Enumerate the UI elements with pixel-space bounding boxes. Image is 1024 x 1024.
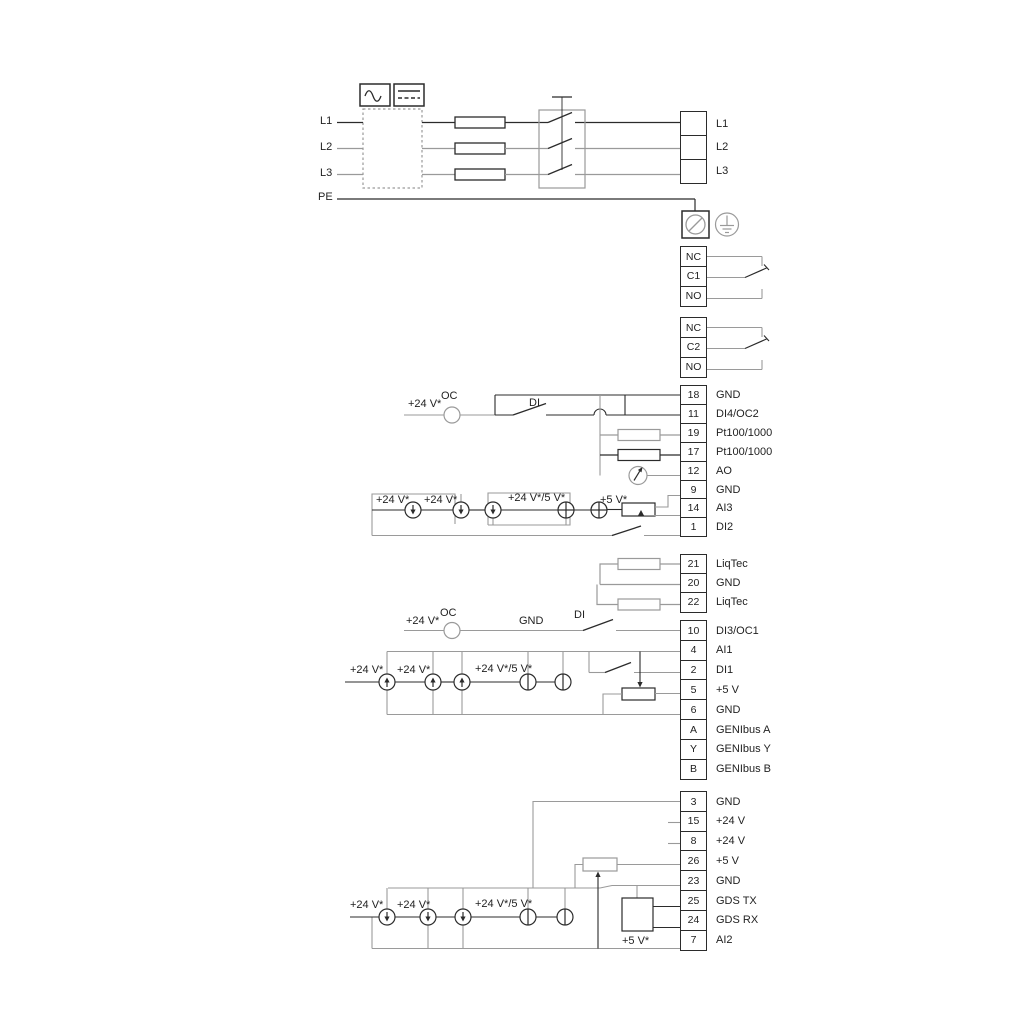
terminal-12-label: AO [716,461,732,481]
ac-symbol-icon [360,84,390,106]
terminal-17: 17 [680,442,707,462]
terminal-row: 9 GND [680,480,772,500]
fuse-icon [455,169,505,180]
terminal-22-label: LiqTec [716,592,748,612]
terminal-10: 10 [680,620,707,641]
terminal-9: 9 [680,480,707,500]
di-switch-icon [605,663,631,673]
phase-l2-wire [337,143,680,154]
terminal-row: 7 AI2 [680,930,758,951]
liqtec-resistor-icon [618,559,660,570]
terminal-L2 [680,135,707,160]
supply-label: +24 V* [406,616,439,627]
supply-label: +5 V* [600,495,627,506]
screw-terminal-icon [682,211,709,238]
terminal-1-label: DI2 [716,517,733,537]
phase-l3-wire [337,169,680,180]
terminal-row: NC [680,317,707,338]
terminal-row: 11 DI4/OC2 [680,404,772,424]
gds-sensor-box [622,898,680,931]
wiring-diagram-page: L1 L2 L3 PE +24 V* OC DI +24 V* +24 V* +… [0,0,1024,1024]
terminal-L1-label: L1 [716,111,728,136]
terminal-row: 3 GND [680,791,758,812]
di-label: DI [574,610,585,621]
terminal-4: 4 [680,640,707,661]
liqtec-circuit [597,559,680,611]
terminal-row: 17 Pt100/1000 [680,442,772,462]
terminal-15-label: +24 V [716,811,745,832]
oc-label: OC [441,391,458,402]
terminal-row: 4 AI1 [680,640,771,661]
terminal-row: 5 +5 V [680,679,771,700]
mains-terminal-strip: L1 L2 L3 [680,111,728,184]
terminal-row: Y GENIbus Y [680,739,771,760]
terminal-NO2: NO [680,357,707,378]
terminal-row: NO [680,357,707,378]
oc-circle-icon [444,407,460,423]
liqtec-resistor-icon [618,599,660,610]
terminal-row: L2 [680,135,728,160]
terminal-row: 14 AI3 [680,498,772,518]
relay2-strip: NC C2 NO [680,317,707,378]
terminal-3: 3 [680,791,707,812]
terminal-21: 21 [680,554,707,574]
supply-label: +24 V* [408,399,441,410]
terminal-row: 21 LiqTec [680,554,748,574]
di4-oc2-circuit [404,395,680,485]
terminal-4-label: AI1 [716,640,733,661]
terminal-A-label: GENIbus A [716,719,770,740]
pt100-resistor-icon [600,450,680,461]
power-input-section [337,84,739,238]
terminal-19: 19 [680,423,707,443]
terminal-row: 22 LiqTec [680,592,748,612]
terminal-strip-1: 18 GND 11 DI4/OC2 19 Pt100/1000 17 Pt100… [680,385,772,537]
terminal-10-label: DI3/OC1 [716,620,759,641]
transmitter-icon [379,909,471,925]
terminal-20-label: GND [716,573,740,593]
terminal-8: 8 [680,831,707,852]
mains-label-l2: L2 [320,142,332,153]
terminal-14-label: AI3 [716,498,733,518]
terminal-row: 10 DI3/OC1 [680,620,771,641]
terminal-25-label: GDS TX [716,890,757,911]
terminal-row: C1 [680,266,707,287]
terminal-B: B [680,759,707,780]
di-switch-icon [583,620,613,631]
di-switch-icon [612,526,641,536]
supply-label: +24 V*/5 V* [508,493,565,504]
terminal-5: 5 [680,679,707,700]
ao-meter-icon [629,467,680,485]
relay1-strip: NC C1 NO [680,246,707,307]
ai1-di1-circuit [345,652,680,715]
terminal-11: 11 [680,404,707,424]
terminal-row: L1 [680,111,728,136]
terminal-row: NO [680,286,707,307]
terminal-row: 15 +24 V [680,811,758,832]
terminal-18: 18 [680,385,707,405]
terminal-L1 [680,111,707,136]
terminal-row: 18 GND [680,385,772,405]
terminal-Y-label: GENIbus Y [716,739,771,760]
earth-icon [716,213,739,236]
fuse-icon [455,143,505,154]
phase-l1-wire [337,117,680,128]
terminal-2-label: DI1 [716,660,733,681]
terminal-row: A GENIbus A [680,719,771,740]
terminal-3-label: GND [716,791,740,812]
terminal-12: 12 [680,461,707,481]
terminal-8-label: +24 V [716,831,745,852]
terminal-18-label: GND [716,385,740,405]
wiring-diagram-svg [0,0,1024,1024]
oc-circle-icon [444,623,460,639]
terminal-row: B GENIbus B [680,759,771,780]
terminal-17-label: Pt100/1000 [716,442,772,462]
supply-label: +24 V* [350,665,383,676]
pe-wire [337,199,695,211]
terminal-row: 8 +24 V [680,831,758,852]
terminal-21-label: LiqTec [716,554,748,574]
terminal-row: NC [680,246,707,267]
dc-symbol-icon [394,84,424,106]
supply-label: +24 V*/5 V* [475,899,532,910]
terminal-row: 19 Pt100/1000 [680,423,772,443]
terminal-L3 [680,159,707,184]
terminal-7-label: AI2 [716,930,733,951]
terminal-7: 7 [680,930,707,951]
terminal-row: 2 DI1 [680,660,771,681]
relay1-contact-icon [707,257,769,299]
terminal-row: 12 AO [680,461,772,481]
pt100-resistor-icon [600,430,680,441]
terminal-row: L3 [680,159,728,184]
supply-label: +24 V* [397,665,430,676]
supply-label: +24 V* [350,900,383,911]
ai2-gds-circuit [350,802,680,949]
terminal-23-label: GND [716,870,740,891]
filter-box [363,109,422,188]
supply-label: +24 V*/5 V* [475,664,532,675]
liqtec-strip: 21 LiqTec 20 GND 22 LiqTec [680,554,748,613]
potentiometer-icon [583,858,617,871]
relay2-contact-icon [707,328,769,370]
mains-label-pe: PE [318,192,333,203]
terminal-row: 26 +5 V [680,850,758,871]
terminal-26: 26 [680,850,707,871]
mains-label-l1: L1 [320,116,332,127]
supply-label: +24 V* [397,900,430,911]
terminal-5-label: +5 V [716,679,739,700]
transmitter-icon [379,674,470,690]
terminal-2: 2 [680,660,707,681]
terminal-L3-label: L3 [716,159,728,184]
supply-label: +24 V* [424,495,457,506]
oc-label: OC [440,608,457,619]
supply-label: +24 V* [376,495,409,506]
terminal-row: 20 GND [680,573,748,593]
terminal-B-label: GENIbus B [716,759,771,780]
terminal-strip-4: 3 GND 15 +24 V 8 +24 V 26 +5 V 23 GND 25… [680,791,758,951]
terminal-19-label: Pt100/1000 [716,423,772,443]
terminal-A: A [680,719,707,740]
terminal-row: 25 GDS TX [680,890,758,911]
terminal-11-label: DI4/OC2 [716,404,759,424]
fuse-icon [455,117,505,128]
di-label: DI [529,398,540,409]
terminal-6: 6 [680,699,707,720]
gnd-label: GND [519,616,543,627]
terminal-23: 23 [680,870,707,891]
mains-label-l3: L3 [320,168,332,179]
supply-label: +5 V* [622,936,649,947]
terminal-24: 24 [680,910,707,931]
terminal-20: 20 [680,573,707,593]
terminal-L2-label: L2 [716,135,728,160]
terminal-25: 25 [680,890,707,911]
terminal-C2: C2 [680,337,707,358]
potentiometer-icon [622,688,655,700]
terminal-6-label: GND [716,699,740,720]
terminal-1: 1 [680,517,707,537]
terminal-14: 14 [680,498,707,518]
terminal-NC1: NC [680,246,707,267]
terminal-C1: C1 [680,266,707,287]
terminal-NC2: NC [680,317,707,338]
terminal-15: 15 [680,811,707,832]
terminal-row: 23 GND [680,870,758,891]
terminal-22: 22 [680,592,707,612]
terminal-24-label: GDS RX [716,910,758,931]
terminal-strip-3: 10 DI3/OC1 4 AI1 2 DI1 5 +5 V 6 GND A GE… [680,620,771,780]
terminal-NO1: NO [680,286,707,307]
terminal-row: 6 GND [680,699,771,720]
terminal-9-label: GND [716,480,740,500]
terminal-26-label: +5 V [716,850,739,871]
terminal-row: C2 [680,337,707,358]
terminal-row: 1 DI2 [680,517,772,537]
terminal-Y: Y [680,739,707,760]
terminal-row: 24 GDS RX [680,910,758,931]
